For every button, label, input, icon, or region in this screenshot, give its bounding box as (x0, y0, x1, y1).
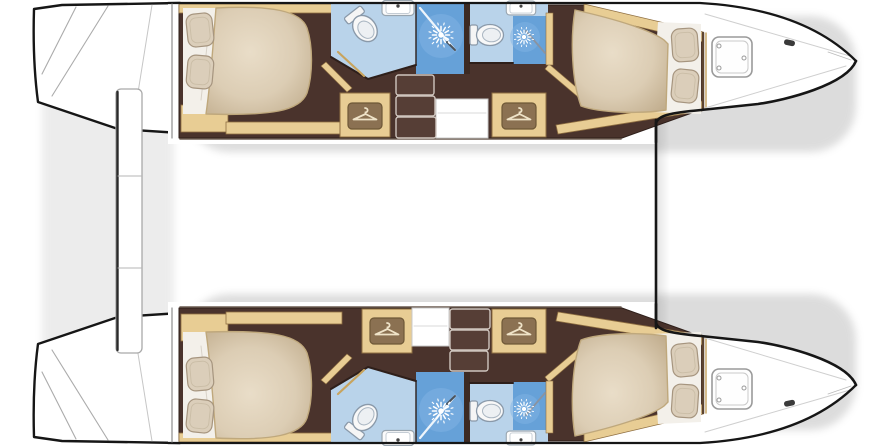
shower-spray-dash (438, 421, 439, 423)
shower-spray-dash (438, 23, 439, 25)
pillow-icon (670, 68, 699, 104)
stair-step (396, 96, 435, 116)
hatch-hinge (717, 44, 721, 48)
shower-spray-dash (444, 399, 445, 401)
sink-faucet (396, 438, 399, 441)
shower-spray-dash (438, 399, 439, 401)
pillow-icon (185, 398, 214, 434)
pillow-icon (671, 384, 699, 419)
pillow-icon (670, 342, 699, 378)
toilet-seat (483, 28, 501, 42)
bow-crossbeam-shade (657, 120, 670, 328)
shower-spray-dash (429, 414, 431, 415)
hatch-hinge (717, 398, 721, 402)
stair-step (450, 351, 488, 371)
sink-faucet (519, 438, 522, 441)
hanger-icon (502, 103, 536, 129)
hanger-icon (370, 318, 404, 344)
pillow-icon (186, 54, 215, 89)
shower-head-center (522, 35, 526, 39)
sink-faucet (396, 4, 399, 7)
shower-spray-dash (438, 45, 439, 47)
shower-spray-dash (451, 408, 453, 409)
toilet-seat (483, 404, 501, 418)
hatch-hinge (717, 66, 721, 70)
shower-head-center (438, 32, 443, 37)
shower-spray-dash (451, 32, 453, 33)
hanger-badge (348, 103, 382, 129)
hanger-badge (502, 318, 536, 344)
stair-step (450, 330, 489, 350)
catamaran-floorplan (0, 0, 890, 446)
shower-head-icon (514, 399, 533, 418)
shower-spray-dash (444, 421, 445, 423)
bed-duvet (206, 332, 312, 439)
pillow-icon (186, 356, 215, 391)
shower-head-center (438, 408, 443, 413)
bed-duvet (206, 7, 312, 114)
trim-inboard-aft (226, 312, 342, 324)
pillow-icon (671, 28, 699, 63)
shower-head-icon (429, 399, 453, 423)
hanger-icon (348, 103, 382, 129)
pillow-icon (185, 12, 214, 48)
shower-wall (546, 381, 553, 433)
floorplan-canvas (0, 0, 890, 446)
toilet-icon (470, 25, 504, 46)
hanger-badge (502, 103, 536, 129)
stair-landing (412, 308, 449, 346)
stair-step (396, 117, 436, 138)
shower-spray-dash (444, 45, 445, 47)
stern-platform (116, 89, 142, 353)
hanger-badge (370, 318, 404, 344)
shower-spray-dash (451, 38, 453, 39)
toilet-icon (470, 401, 504, 422)
shower-spray-dash (444, 23, 445, 25)
shower-spray-dash (429, 408, 431, 409)
shower-head-icon (429, 23, 453, 47)
stair-step (396, 75, 434, 95)
hanger-icon (502, 318, 536, 344)
hatch-hinge (742, 56, 746, 60)
shower-spray-dash (451, 414, 453, 415)
shower-head-center (522, 407, 526, 411)
hatch-hinge (742, 386, 746, 390)
stair-landing (436, 99, 488, 138)
shower-wall (546, 13, 553, 65)
shower-spray-dash (429, 38, 431, 39)
hatch-hinge (717, 376, 721, 380)
shower-spray-dash (429, 32, 431, 33)
stair-step (450, 309, 490, 329)
shower-head-icon (514, 27, 533, 46)
sink-faucet (519, 5, 522, 8)
trim-inboard-aft (226, 122, 342, 134)
